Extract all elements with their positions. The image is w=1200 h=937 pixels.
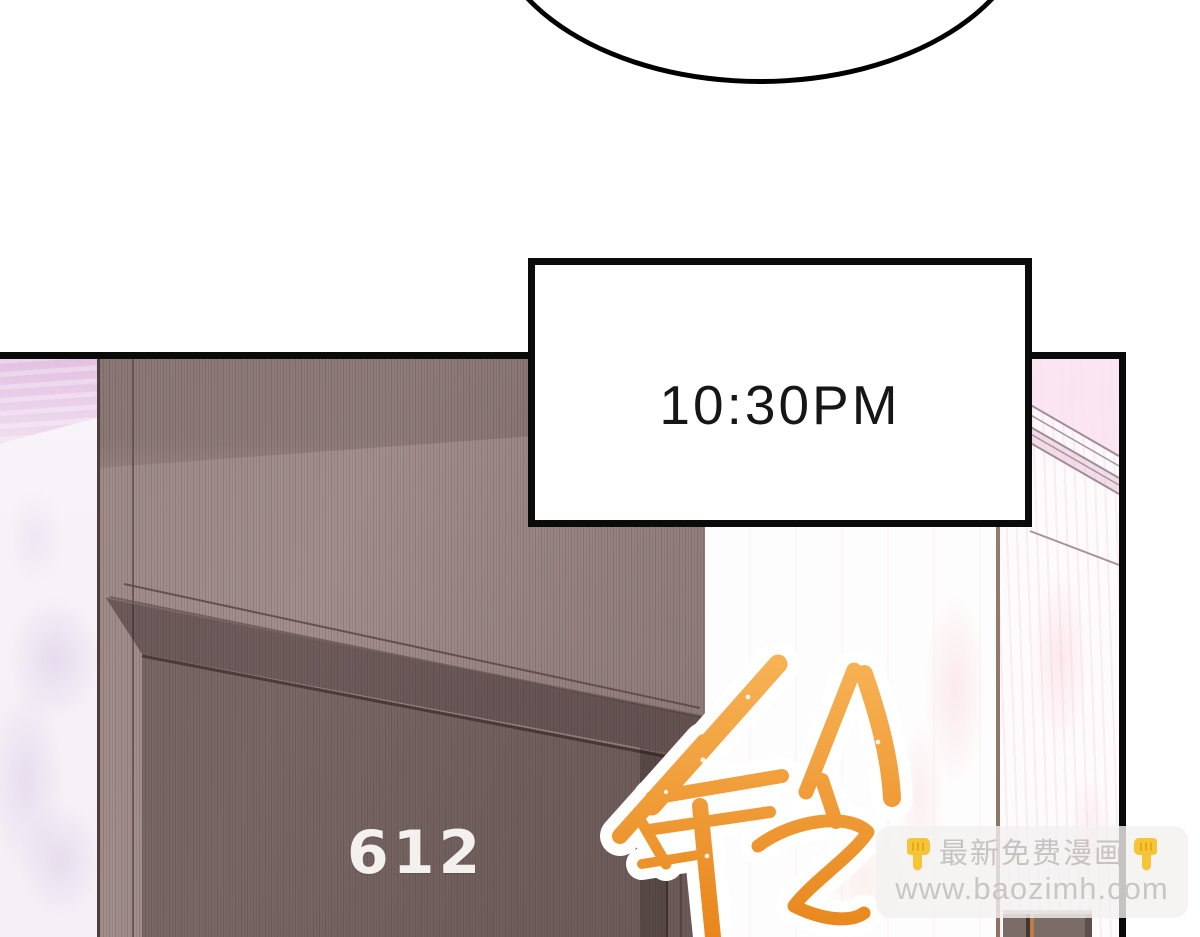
pointing-down-finger-icon — [1132, 837, 1157, 872]
time-text: 10:30PM — [659, 373, 900, 437]
pointing-down-finger-icon — [907, 837, 932, 872]
time-caption-box: 10:30PM — [528, 258, 1032, 527]
comic-page: 612 铃 — [0, 0, 1200, 937]
site-watermark: 最新免费漫画 www.baozimh.com — [876, 826, 1188, 918]
watermark-title: 最新免费漫画 — [939, 839, 1125, 871]
watermark-url: www.baozimh.com — [895, 872, 1168, 906]
watermark-title-row: 最新免费漫画 — [907, 837, 1157, 872]
